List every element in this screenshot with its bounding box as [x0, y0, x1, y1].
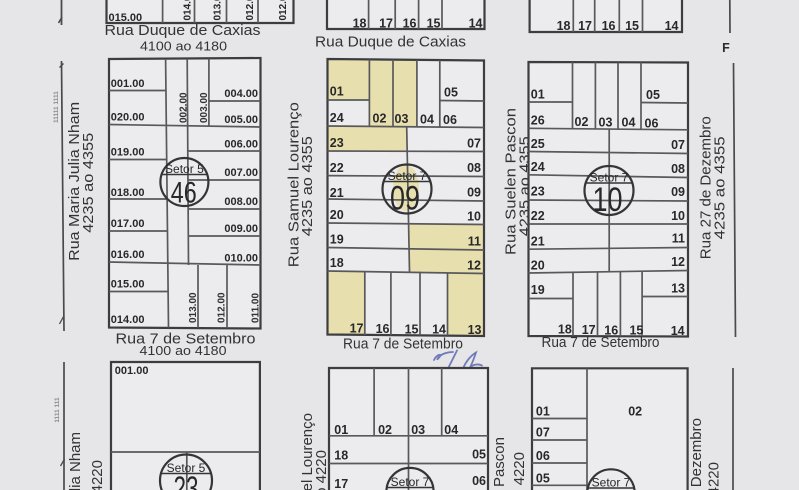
- svg-text:07: 07: [536, 426, 550, 440]
- svg-text:13: 13: [468, 323, 482, 337]
- svg-text:012.00: 012.00: [278, 0, 289, 21]
- svg-text:04: 04: [444, 423, 458, 437]
- svg-text:019.00: 019.00: [111, 147, 145, 159]
- svg-text:Rua 7 de Setembro: Rua 7 de Setembro: [343, 336, 463, 353]
- svg-text:010.00: 010.00: [224, 253, 258, 265]
- svg-text:20: 20: [330, 208, 344, 222]
- svg-text:4161 ao 4220: 4161 ao 4220: [706, 462, 723, 490]
- svg-text:018.00: 018.00: [111, 187, 145, 199]
- svg-text:002.00: 002.00: [178, 92, 189, 123]
- svg-text:17: 17: [334, 477, 348, 490]
- svg-text:16: 16: [602, 19, 616, 33]
- svg-text:22: 22: [330, 161, 344, 175]
- svg-text:06: 06: [443, 113, 457, 127]
- svg-text:F: F: [722, 41, 730, 55]
- svg-text:10: 10: [593, 181, 623, 219]
- svg-text:18: 18: [334, 448, 348, 462]
- svg-text:007.00: 007.00: [224, 167, 258, 179]
- svg-text:09: 09: [671, 185, 685, 199]
- svg-text:03: 03: [599, 115, 613, 129]
- svg-text:01: 01: [330, 85, 344, 99]
- svg-text:001.00: 001.00: [115, 365, 149, 377]
- svg-text:13: 13: [671, 282, 685, 296]
- svg-text:03: 03: [411, 423, 425, 437]
- svg-text:05: 05: [472, 448, 486, 462]
- svg-text:11: 11: [468, 235, 481, 249]
- svg-text:12: 12: [671, 255, 685, 269]
- svg-text:09: 09: [390, 179, 420, 217]
- svg-text:15: 15: [405, 322, 419, 336]
- svg-text:23: 23: [330, 136, 344, 150]
- svg-text:23: 23: [531, 185, 545, 199]
- svg-text:22: 22: [531, 209, 545, 223]
- svg-text:09: 09: [467, 186, 481, 200]
- svg-text:16: 16: [376, 322, 390, 336]
- svg-text:16: 16: [403, 17, 417, 31]
- svg-text:01: 01: [531, 88, 545, 102]
- svg-text:11: 11: [672, 232, 685, 246]
- svg-text:02: 02: [373, 112, 387, 126]
- svg-text:06: 06: [536, 449, 550, 463]
- svg-text:24: 24: [531, 160, 545, 174]
- svg-text:07: 07: [467, 137, 481, 151]
- svg-text:04: 04: [420, 113, 434, 127]
- svg-text:05: 05: [536, 471, 550, 485]
- svg-text:15: 15: [625, 19, 639, 33]
- svg-text:015.00: 015.00: [111, 279, 145, 291]
- svg-text:4161 ao 4220: 4161 ao 4220: [511, 452, 528, 490]
- svg-text:4100 ao 4180: 4100 ao 4180: [140, 343, 227, 358]
- svg-text:Rua Duque de Caxias: Rua Duque de Caxias: [105, 22, 261, 39]
- svg-text:08: 08: [467, 161, 481, 175]
- svg-text:46: 46: [171, 177, 197, 210]
- svg-text:016.00: 016.00: [111, 249, 145, 261]
- svg-text:10: 10: [467, 210, 481, 224]
- svg-text:04: 04: [622, 115, 636, 129]
- svg-text:17: 17: [578, 19, 592, 33]
- svg-text:07: 07: [671, 138, 685, 152]
- svg-text:Setor 5: Setor 5: [165, 162, 204, 176]
- svg-text:Setor 7: Setor 7: [592, 476, 631, 490]
- svg-text:06: 06: [645, 117, 659, 131]
- svg-text:011.00: 011.00: [251, 293, 262, 323]
- svg-text:26: 26: [531, 114, 545, 128]
- svg-text:4235 ao 4355: 4235 ao 4355: [299, 136, 316, 236]
- svg-text:11111 1111: 11111 1111: [53, 91, 60, 123]
- svg-text:24: 24: [330, 111, 344, 125]
- svg-text:02: 02: [378, 423, 392, 437]
- svg-text:02: 02: [575, 115, 589, 129]
- svg-text:014.00: 014.00: [111, 314, 145, 326]
- svg-text:014.00: 014.00: [183, 0, 194, 21]
- svg-text:020.00: 020.00: [111, 112, 145, 124]
- svg-text:008.00: 008.00: [224, 196, 258, 208]
- svg-text:01: 01: [536, 404, 550, 418]
- svg-text:17: 17: [379, 17, 393, 31]
- svg-text:20: 20: [531, 259, 545, 273]
- svg-text:19: 19: [330, 233, 344, 247]
- svg-text:Rua 27 de Dezembro: Rua 27 de Dezembro: [688, 418, 705, 490]
- svg-text:06: 06: [472, 474, 486, 488]
- svg-text:4235 ao 4355: 4235 ao 4355: [712, 136, 729, 239]
- svg-text:21: 21: [330, 186, 344, 200]
- svg-text:10: 10: [671, 209, 685, 223]
- svg-text:14: 14: [665, 19, 679, 33]
- svg-text:05: 05: [646, 88, 660, 102]
- svg-text:14: 14: [469, 17, 483, 31]
- svg-text:003.00: 003.00: [199, 92, 210, 123]
- svg-text:15: 15: [427, 17, 441, 31]
- svg-text:004.00: 004.00: [224, 88, 258, 100]
- svg-text:4235 ao 4355: 4235 ao 4355: [80, 133, 97, 233]
- svg-text:12: 12: [467, 259, 481, 273]
- svg-text:005.00: 005.00: [224, 114, 258, 126]
- svg-text:009.00: 009.00: [224, 223, 258, 235]
- svg-text:03: 03: [395, 112, 409, 126]
- svg-text:Rua Suelen Pascon: Rua Suelen Pascon: [491, 437, 508, 490]
- svg-text:05: 05: [444, 86, 458, 100]
- svg-text:013.00: 013.00: [188, 292, 199, 323]
- svg-text:Rua Maria Julia Nham: Rua Maria Julia Nham: [67, 432, 84, 490]
- svg-text:1111 111: 1111 111: [54, 397, 61, 423]
- svg-text:006.00: 006.00: [224, 139, 258, 151]
- svg-text:17: 17: [350, 322, 364, 336]
- svg-text:4100 ao 4180: 4100 ao 4180: [140, 39, 227, 54]
- svg-text:4161 ao 4220: 4161 ao 4220: [313, 450, 330, 490]
- svg-text:23: 23: [174, 470, 199, 490]
- svg-text:Rua Duque de Caxias: Rua Duque de Caxias: [315, 34, 466, 51]
- svg-text:017.00: 017.00: [111, 218, 145, 230]
- svg-text:21: 21: [531, 234, 545, 248]
- svg-text:Rua 7 de Setembro: Rua 7 de Setembro: [542, 334, 660, 351]
- svg-text:08: 08: [671, 162, 685, 176]
- svg-text:25: 25: [531, 137, 545, 151]
- svg-text:01: 01: [334, 423, 348, 437]
- svg-text:14: 14: [671, 324, 685, 338]
- svg-text:4161 ao 4220: 4161 ao 4220: [89, 460, 106, 490]
- svg-text:001.00: 001.00: [111, 78, 145, 90]
- svg-text:013.00: 013.00: [213, 0, 224, 21]
- svg-text:02: 02: [628, 404, 642, 418]
- svg-text:012.00: 012.00: [245, 0, 256, 21]
- svg-text:18: 18: [330, 256, 344, 270]
- svg-text:18: 18: [557, 19, 571, 33]
- svg-text:19: 19: [531, 283, 545, 297]
- svg-text:012.00: 012.00: [217, 292, 228, 323]
- svg-text:18: 18: [353, 17, 367, 31]
